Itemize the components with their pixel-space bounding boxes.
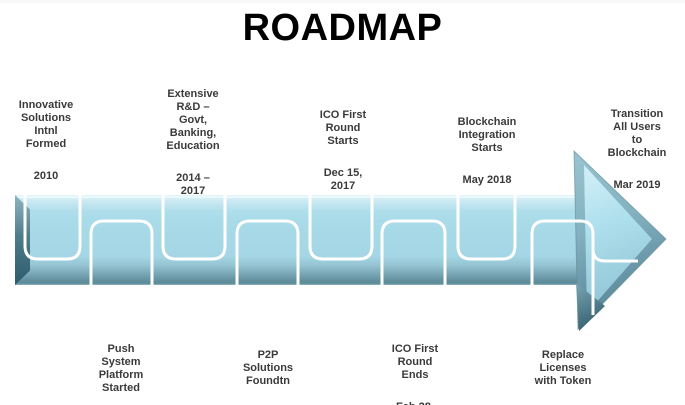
- milestone-top-5: Transition All Users to Blockchain Mar 2…: [582, 95, 685, 205]
- milestone-label: ICO First Round Starts: [288, 109, 398, 148]
- milestone-label: Innovative Solutions Intnl Formed: [0, 99, 101, 151]
- milestone-date: 2014 – 2017: [138, 172, 248, 198]
- milestone-label: Extensive R&D – Govt, Banking, Education: [138, 88, 248, 153]
- milestone-label: ICO First Round Ends: [360, 343, 470, 382]
- milestone-label: Replace Licenses with Token: [508, 349, 618, 388]
- milestone-date: May 2018: [432, 174, 542, 187]
- milestone-date: Mar 2019: [582, 179, 685, 192]
- arrow-tail-bevel: [15, 195, 30, 285]
- milestone-label: Push System Platform Started: [66, 343, 176, 395]
- milestone-top-2: Extensive R&D – Govt, Banking, Education…: [138, 75, 248, 211]
- roadmap-slide: ROADMAP: [0, 0, 685, 405]
- milestone-bottom-4: Replace Licenses with Token Dec 2018: [508, 336, 618, 405]
- milestone-top-1: Innovative Solutions Intnl Formed 2010: [0, 86, 101, 196]
- milestone-bottom-2: P2P Solutions Foundtn Nov 2017: [213, 336, 323, 405]
- milestone-date: Feb 28, 2018: [360, 401, 470, 405]
- milestone-label: Blockchain Integration Starts: [432, 116, 542, 155]
- milestone-label: P2P Solutions Foundtn: [213, 349, 323, 388]
- milestone-date: Dec 15, 2017: [288, 167, 398, 193]
- milestone-top-3: ICO First Round Starts Dec 15, 2017: [288, 96, 398, 206]
- milestone-top-4: Blockchain Integration Starts May 2018: [432, 103, 542, 200]
- milestone-bottom-3: ICO First Round Ends Feb 28, 2018: [360, 330, 470, 405]
- milestone-bottom-1: Push System Platform Started 2011: [66, 330, 176, 405]
- milestone-label: Transition All Users to Blockchain: [582, 108, 685, 160]
- milestone-date: 2010: [0, 170, 101, 183]
